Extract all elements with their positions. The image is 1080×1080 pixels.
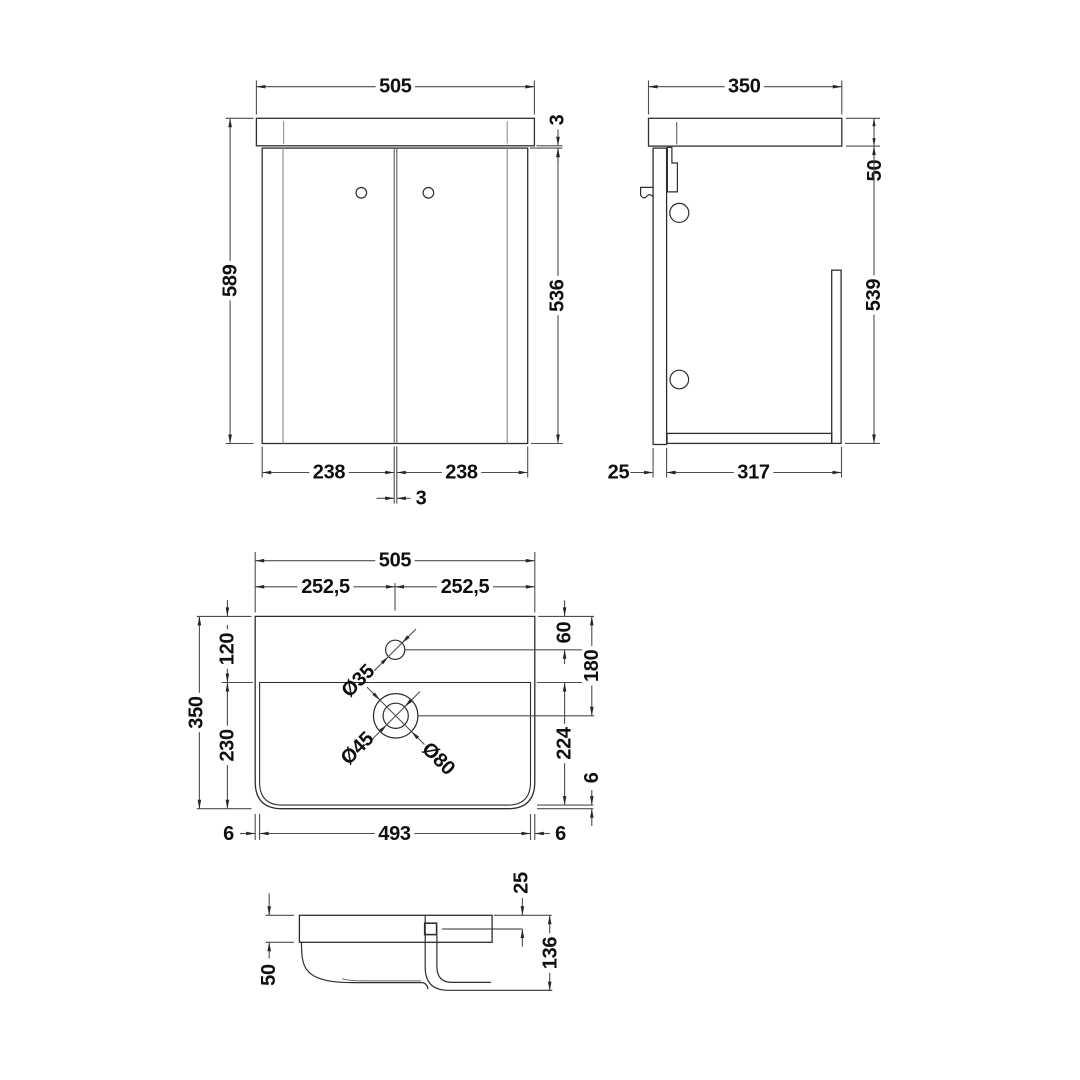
svg-text:493: 493 (378, 823, 411, 845)
svg-text:6: 6 (555, 823, 566, 845)
svg-text:238: 238 (313, 462, 346, 484)
svg-text:120: 120 (216, 633, 238, 666)
svg-text:136: 136 (539, 937, 561, 970)
svg-text:350: 350 (728, 76, 761, 98)
svg-text:3: 3 (547, 114, 569, 125)
svg-text:50: 50 (864, 160, 886, 182)
svg-text:230: 230 (216, 729, 238, 762)
svg-text:350: 350 (186, 696, 208, 729)
svg-text:505: 505 (379, 76, 412, 98)
svg-text:60: 60 (554, 622, 576, 644)
svg-text:252,5: 252,5 (301, 576, 350, 598)
svg-text:505: 505 (379, 550, 412, 572)
svg-text:238: 238 (445, 462, 478, 484)
svg-text:6: 6 (581, 772, 603, 783)
svg-text:180: 180 (581, 649, 603, 682)
svg-text:3: 3 (416, 487, 427, 509)
svg-text:536: 536 (547, 279, 569, 312)
svg-text:224: 224 (554, 726, 576, 760)
svg-text:25: 25 (510, 872, 532, 894)
svg-text:539: 539 (863, 279, 885, 312)
svg-text:6: 6 (223, 823, 234, 845)
svg-text:50: 50 (258, 964, 280, 986)
svg-text:25: 25 (608, 462, 630, 484)
svg-text:252,5: 252,5 (441, 576, 490, 598)
svg-text:589: 589 (219, 264, 241, 297)
svg-text:317: 317 (737, 462, 770, 484)
